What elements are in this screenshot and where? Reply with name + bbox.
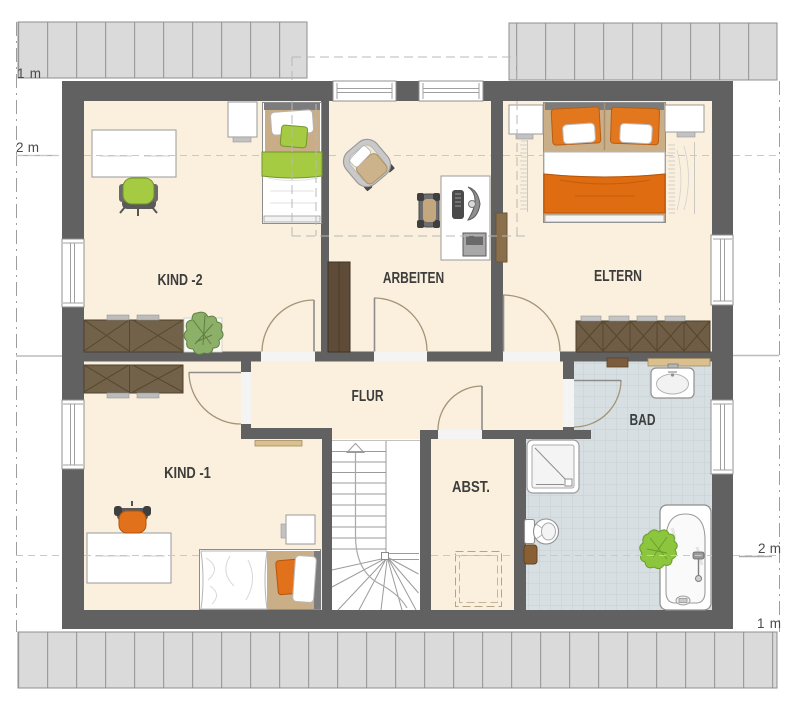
svg-text:KIND -2: KIND -2 xyxy=(157,272,202,290)
svg-text:ARBEITEN: ARBEITEN xyxy=(383,268,444,286)
svg-text:1 m: 1 m xyxy=(17,66,41,81)
svg-text:ELTERN: ELTERN xyxy=(594,268,642,286)
svg-text:KIND -1: KIND -1 xyxy=(164,465,211,483)
svg-text:2 m: 2 m xyxy=(758,541,781,556)
svg-text:ABST.: ABST. xyxy=(452,479,490,496)
svg-text:2 m: 2 m xyxy=(16,140,39,155)
svg-text:BAD: BAD xyxy=(630,410,656,428)
svg-text:FLUR: FLUR xyxy=(352,386,384,404)
svg-text:1 m: 1 m xyxy=(757,616,781,631)
